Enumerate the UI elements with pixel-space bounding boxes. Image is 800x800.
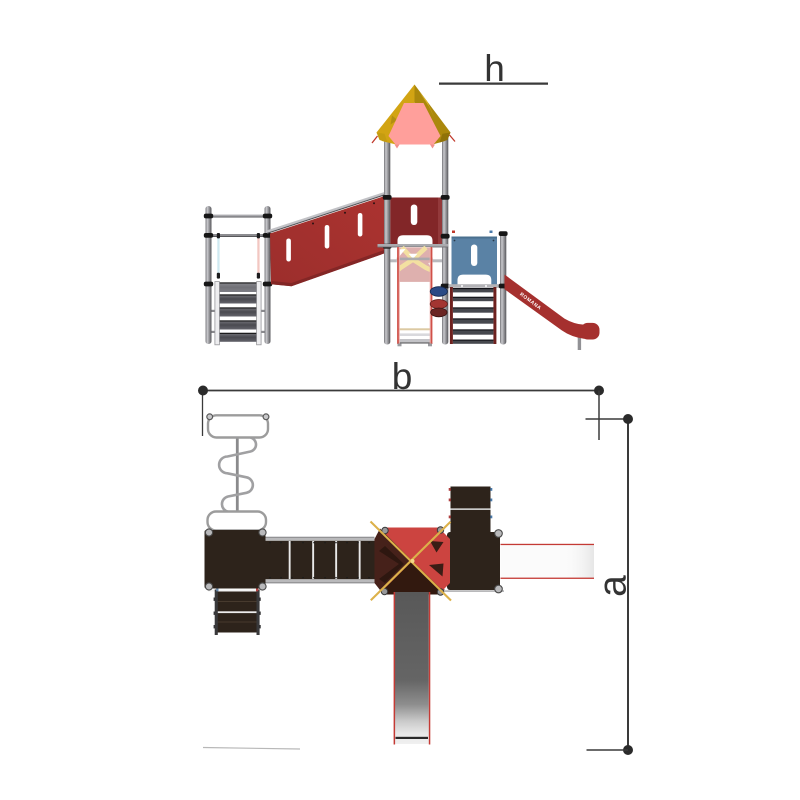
svg-text:a: a — [592, 575, 635, 597]
svg-text:b: b — [392, 356, 413, 397]
